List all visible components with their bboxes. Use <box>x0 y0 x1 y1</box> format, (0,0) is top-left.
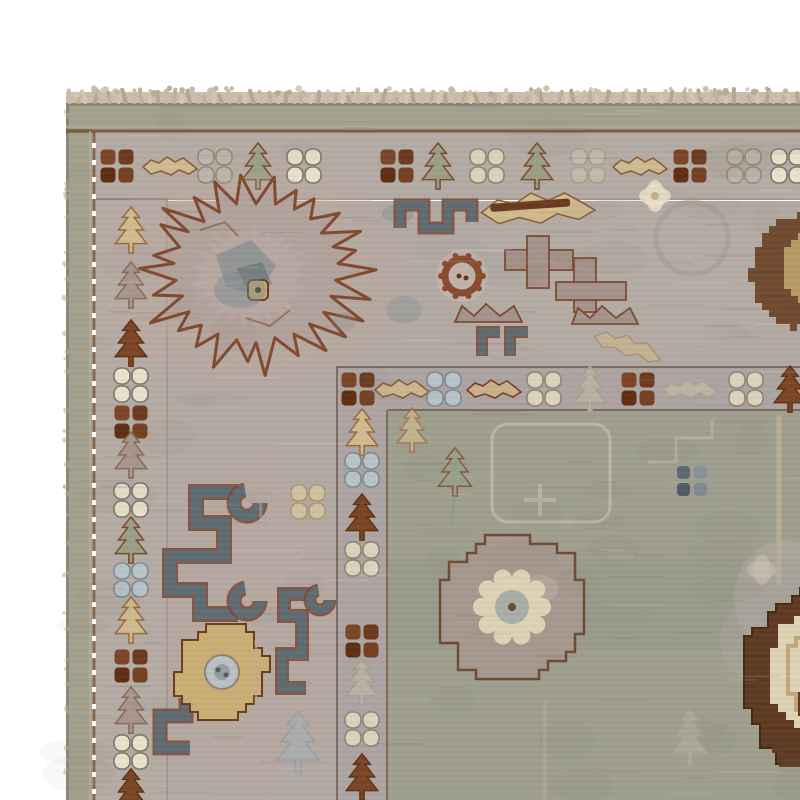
rug-product-photo <box>0 0 800 800</box>
slate-smudge <box>332 313 356 331</box>
rug-photo-svg <box>0 0 800 800</box>
